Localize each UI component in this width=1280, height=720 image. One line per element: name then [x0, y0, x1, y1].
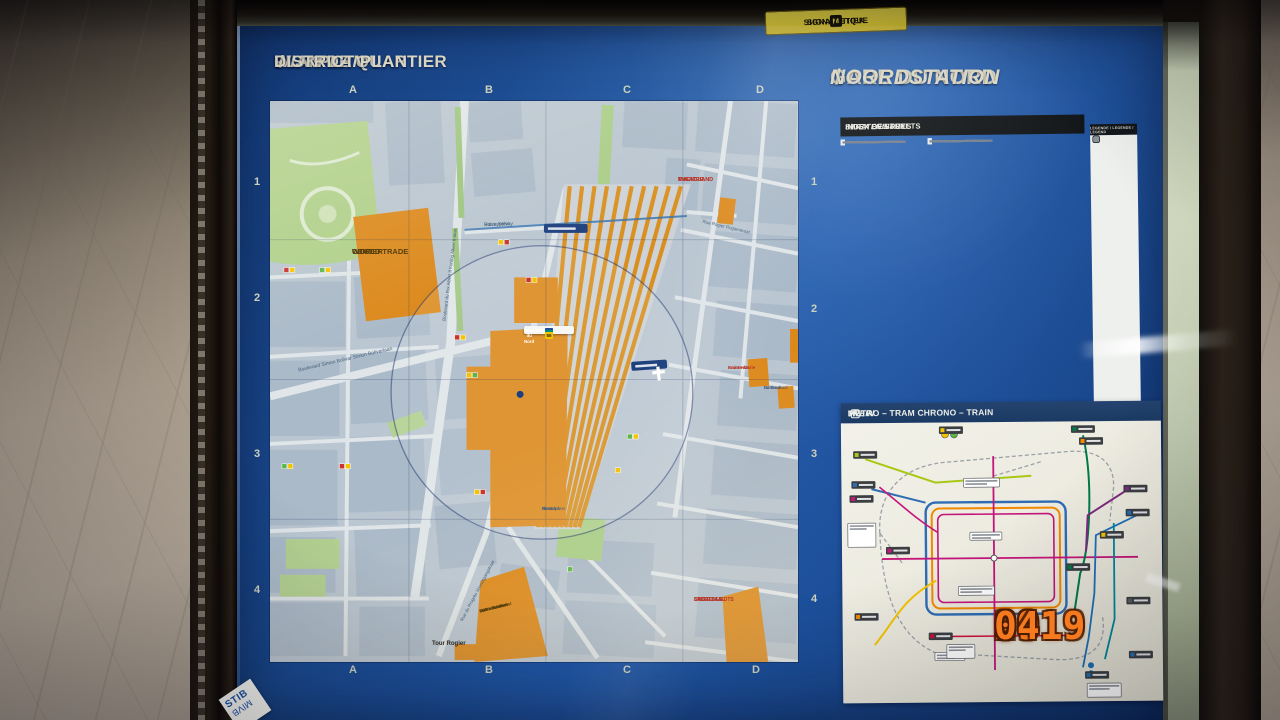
- street-index-panel: INDEX DES RUES/STRATENINDEX/INDEX OF STR…: [840, 115, 1087, 400]
- dash-glyph: [850, 413, 856, 415]
- timestamp-day: 04: [994, 604, 1040, 648]
- grid-label-right: 4: [806, 593, 822, 605]
- index-column-1: [841, 138, 923, 139]
- terminus-box: [1071, 425, 1095, 433]
- terminus-box: [929, 632, 953, 640]
- grid-label-right: 1: [806, 176, 822, 188]
- grid-label-top: C: [619, 84, 635, 96]
- title-en: DISTRICT PLAN: [274, 52, 407, 72]
- stop-badge: [461, 335, 466, 340]
- station-title-nl: NOORDSTATION: [830, 66, 1000, 90]
- signaletique-sticker: SIGNALETIQUE M SIGNALETIEK: [765, 7, 908, 36]
- board-frame-right: [1199, 0, 1261, 720]
- legend-header: LEGENDE / LEGENDE / LEGEND: [1090, 124, 1137, 136]
- route-info-badge: [544, 224, 588, 233]
- stop-badge: [498, 240, 503, 245]
- station-label-box: [963, 478, 999, 487]
- stop-badge: [474, 490, 479, 495]
- stop-badge: [290, 268, 295, 273]
- terminus-box: [1126, 597, 1150, 605]
- metro-diagram-panel: METRO – TRAM CHRONO – TRAIN/TREINS: [841, 401, 1164, 704]
- terminus-box: [1123, 485, 1147, 493]
- index-entry-row: [928, 138, 932, 144]
- terminus-box: [1126, 509, 1150, 517]
- metro-network-map: [841, 421, 1163, 704]
- district-map: [270, 101, 798, 662]
- index-title-en: INDEX OF STREETS: [845, 122, 920, 132]
- board-frame-top: [237, 0, 1163, 26]
- stop-badge: [326, 268, 331, 273]
- terminus-box: [1079, 437, 1103, 445]
- metro-diagram-header: METRO – TRAM CHRONO – TRAIN/TREINS: [841, 401, 1161, 424]
- stop-badge: [320, 268, 325, 273]
- stop-badge: [467, 373, 472, 378]
- grid-label-bottom: C: [619, 664, 635, 676]
- legend-panel: LEGENDE / LEGENDE / LEGEND: [1090, 124, 1141, 417]
- stop-badge: [472, 373, 477, 378]
- legend-icon: [1093, 136, 1099, 142]
- station-label-box: [1087, 683, 1121, 697]
- stop-badge: [345, 464, 350, 469]
- grid-label-left: 1: [249, 176, 265, 188]
- board-frame-right-strip: [1163, 22, 1199, 720]
- grid-label-bottom: B: [481, 664, 497, 676]
- grid-label-right: 3: [806, 448, 822, 460]
- stop-badge: [633, 434, 638, 439]
- station-label-box: [958, 586, 994, 595]
- grid-label-top: D: [752, 84, 768, 96]
- terminus-box: [1085, 671, 1109, 679]
- station-label-box: [970, 532, 1002, 540]
- terminus-box: [886, 547, 910, 555]
- stop-badge: [284, 268, 289, 273]
- station-info-box: Gare du NordNoordstation BS 2047 342555: [524, 326, 574, 334]
- terminus-box: [1129, 651, 1153, 659]
- grid-label-bottom: D: [748, 664, 764, 676]
- frame-edge-shadow: [1163, 22, 1168, 720]
- grid-label-left: 4: [249, 584, 265, 596]
- marble-veins: [1261, 0, 1280, 720]
- stop-badge: [568, 567, 573, 572]
- stop-badge: [288, 464, 293, 469]
- sticker-text-nl: SIGNALETIEK: [807, 15, 865, 26]
- stop-badge: [339, 464, 344, 469]
- terminus-box: [851, 481, 875, 489]
- terminus-box: [1066, 563, 1090, 571]
- district-map-panel: WTC 1 -WORLD TRADECENTER MAGIC LANDTHEAT…: [270, 101, 798, 662]
- walking-radius-circle: [391, 246, 693, 539]
- frame-hinge: [198, 0, 205, 720]
- grid-label-top: A: [345, 84, 361, 96]
- terminus-box: [1100, 531, 1124, 539]
- street-index-header: INDEX DES RUES/STRATENINDEX/INDEX OF STR…: [840, 115, 1084, 137]
- stop-badge: [455, 335, 460, 340]
- stop-badge: [615, 468, 620, 473]
- terminus-box: [855, 613, 879, 621]
- index-column-3: [1015, 137, 1081, 138]
- grid-ref-blur: [843, 141, 861, 143]
- photo-scene: SIGNALETIQUE M SIGNALETIEK PLAN DE QUART…: [0, 0, 1280, 720]
- grid-label-top: B: [481, 84, 497, 96]
- line-badge: 55: [545, 332, 553, 339]
- terminus-box: [849, 495, 873, 503]
- glass-edge-highlight: [237, 26, 240, 720]
- station-label-box: [848, 523, 876, 547]
- terminus-box: [939, 426, 963, 434]
- legend-items: [1090, 135, 1141, 417]
- info-point-icon: [517, 391, 524, 398]
- board-frame-left: [190, 0, 237, 720]
- stop-badge: [282, 464, 287, 469]
- station-label-box: [947, 644, 975, 658]
- grid-label-right: 2: [806, 303, 822, 315]
- stop-badge: [532, 277, 537, 282]
- stop-badge: [526, 277, 531, 282]
- grid-label-bottom: A: [345, 664, 361, 676]
- grid-label-left: 3: [249, 448, 265, 460]
- stop-badge: [627, 434, 632, 439]
- metro-network-svg: [841, 421, 1163, 704]
- grid-ref-blur: [930, 140, 950, 142]
- station-label-boxes: [847, 477, 1121, 699]
- marble-wall-right: [1261, 0, 1280, 720]
- index-column-2: [928, 137, 1010, 138]
- terminus-box: [853, 451, 877, 459]
- stop-badge: [480, 490, 485, 495]
- grid-label-left: 2: [249, 292, 265, 304]
- index-entry-row: [841, 139, 845, 145]
- stop-badge: [504, 240, 509, 245]
